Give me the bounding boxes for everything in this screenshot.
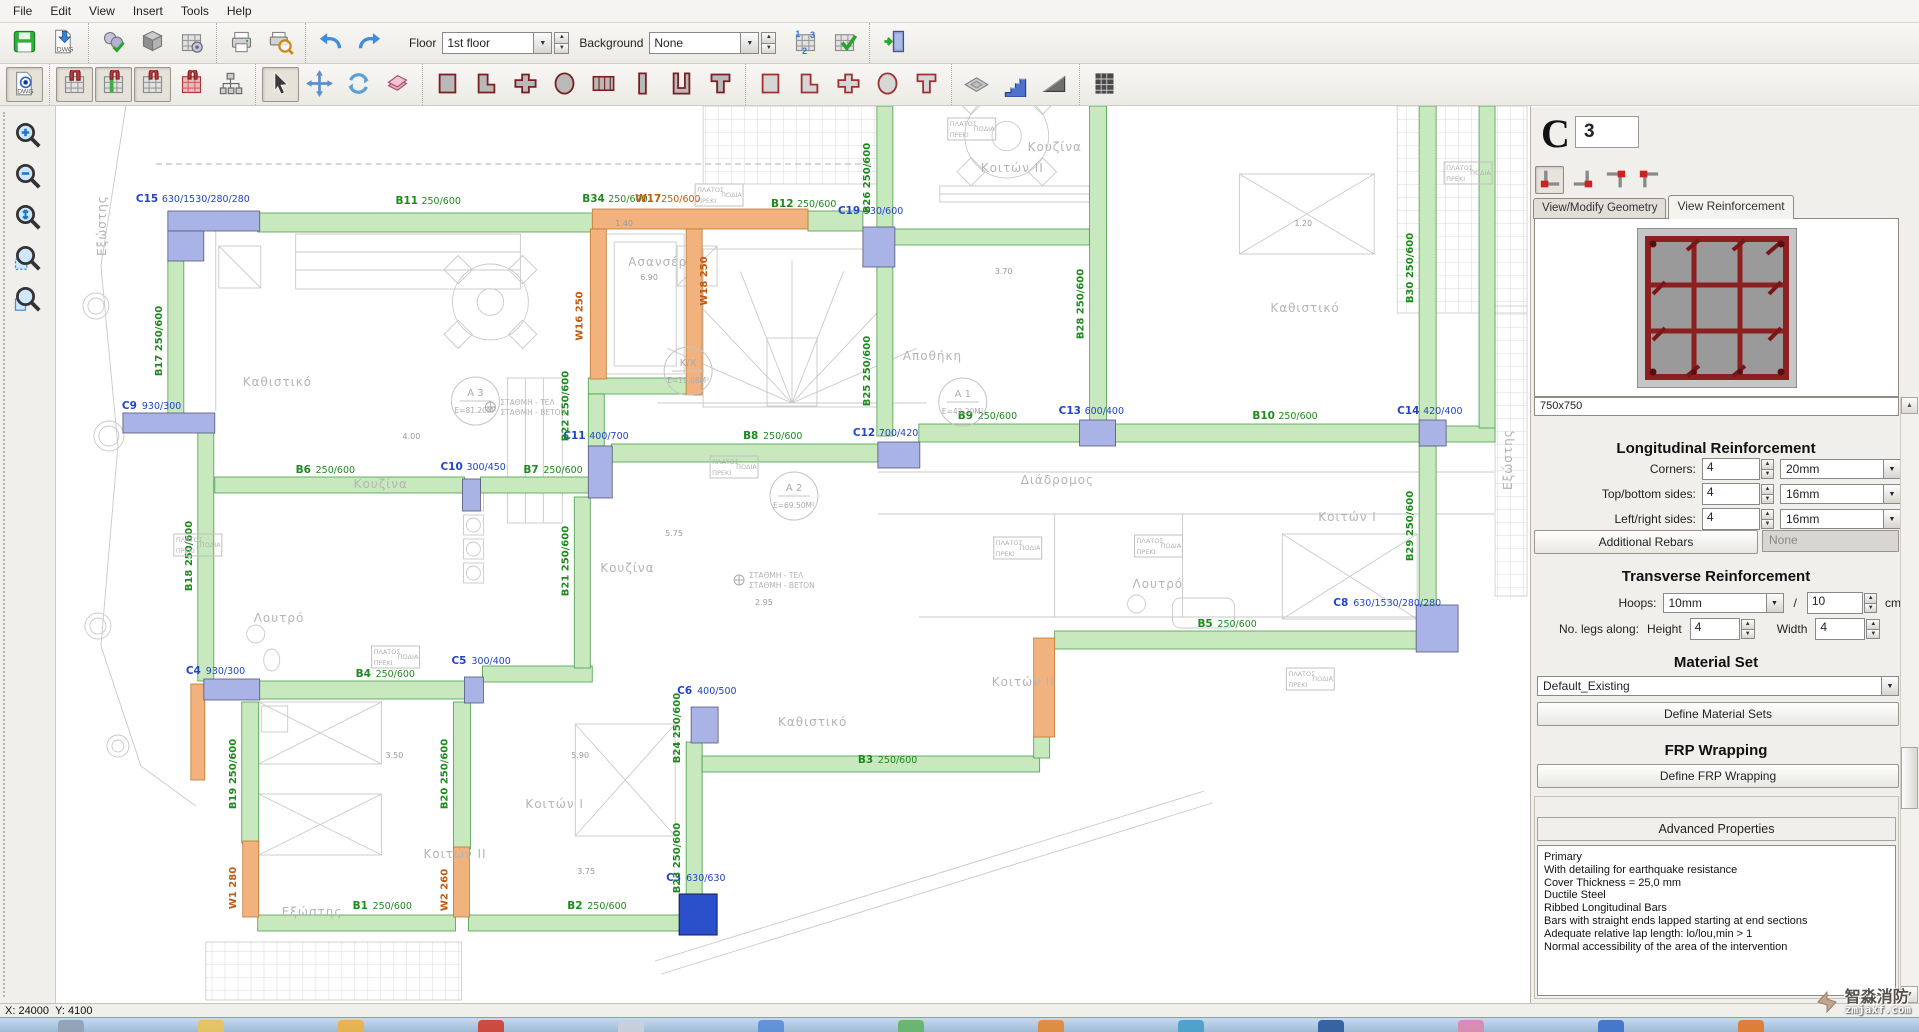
- section-u-button[interactable]: [663, 67, 700, 102]
- svg-text:250/600: 250/600: [878, 755, 917, 766]
- svg-text:ΠΛΑΤΟΣ: ΠΛΑΤΟΣ: [697, 186, 724, 194]
- svg-text:Κοιτών II: Κοιτών II: [992, 675, 1055, 689]
- cube-icon: [139, 28, 166, 58]
- rebar-diameter-select[interactable]: 16mm▼: [1780, 509, 1901, 529]
- check-model-button[interactable]: [826, 26, 863, 61]
- ramp-icon: [1041, 70, 1068, 100]
- svg-text:1.40: 1.40: [615, 219, 633, 228]
- svg-text:B29 250/600: B29 250/600: [1405, 491, 1416, 561]
- svg-text:C15: C15: [136, 193, 158, 205]
- svg-text:2.95: 2.95: [755, 598, 773, 607]
- svg-text:ΠΡΕΚΙ: ΠΡΕΚΙ: [1446, 175, 1465, 183]
- taskbar-app-icon[interactable]: [1178, 1020, 1204, 1032]
- rebar-diameter-select[interactable]: 16mm▼: [1780, 484, 1901, 504]
- svg-text:B25 250/600: B25 250/600: [862, 336, 873, 406]
- panel-scrollbar[interactable]: ▲ ▼: [1900, 397, 1919, 1003]
- svg-text:A 3: A 3: [467, 388, 483, 399]
- member-l-icon: [796, 70, 823, 100]
- section-rect-icon: [434, 70, 461, 100]
- hoops-spacing-field[interactable]: 10: [1807, 592, 1864, 614]
- svg-text:3.75: 3.75: [577, 867, 595, 876]
- svg-text:Κουζίνα: Κουζίνα: [1028, 140, 1082, 154]
- svg-text:Κουζίνα: Κουζίνα: [354, 477, 408, 491]
- svg-text:B17 250/600: B17 250/600: [154, 306, 165, 376]
- svg-text:C10: C10: [440, 461, 462, 473]
- column-pos-tr-button[interactable]: [1601, 166, 1630, 194]
- svg-text:300/400: 300/400: [471, 656, 510, 667]
- status-bar: X: 24000 Y: 4100: [0, 1003, 1919, 1017]
- taskbar-app-icon[interactable]: [898, 1020, 924, 1032]
- define-material-sets-button[interactable]: Define Material Sets: [1537, 702, 1899, 726]
- svg-text:B3: B3: [858, 754, 873, 766]
- longitudinal-row: Left/right sides:4▲▼16mm▼: [1531, 508, 1901, 530]
- svg-text:630/630: 630/630: [686, 873, 725, 884]
- frp-title: FRP Wrapping: [1531, 742, 1901, 759]
- chevron-down-icon: ▼: [1884, 459, 1901, 479]
- legs-width-field[interactable]: 4: [1815, 618, 1865, 640]
- chevron-down-icon[interactable]: ▼: [741, 32, 759, 54]
- member-tee-icon: [913, 70, 940, 100]
- cursor-y: Y: 4100: [55, 1005, 92, 1017]
- svg-text:ΠΛΑΤΟΣ: ΠΛΑΤΟΣ: [712, 458, 739, 466]
- longitudinal-row: Top/bottom sides:4▲▼16mm▼: [1531, 483, 1901, 505]
- delete-button[interactable]: [379, 67, 416, 102]
- svg-text:4.00: 4.00: [403, 432, 421, 441]
- svg-text:630/1530/280/280: 630/1530/280/280: [162, 194, 250, 205]
- taskbar-app-icon[interactable]: [1458, 1020, 1484, 1032]
- svg-text:C14: C14: [1397, 405, 1419, 417]
- rebar-diameter-select[interactable]: 20mm▼: [1780, 459, 1901, 479]
- member-rect-icon: [757, 70, 784, 100]
- material-title: Material Set: [1531, 654, 1901, 671]
- svg-text:C13: C13: [1059, 405, 1081, 417]
- element-number-field[interactable]: 3: [1575, 116, 1639, 148]
- svg-text:ΠΛΑΤΟΣ: ΠΛΑΤΟΣ: [1137, 537, 1164, 545]
- advanced-properties-group: Advanced Properties PrimaryWith detailin…: [1534, 796, 1899, 999]
- svg-text:A 1: A 1: [955, 389, 971, 400]
- print-preview-button[interactable]: [262, 26, 299, 61]
- section-size-field[interactable]: 750x750: [1534, 397, 1899, 416]
- dwg-view-button[interactable]: DWG: [6, 67, 43, 102]
- svg-text:B23 250/600: B23 250/600: [672, 823, 683, 893]
- svg-text:E=42.20M²: E=42.20M²: [942, 407, 984, 416]
- drawing-toolbar: DWG: [0, 64, 1919, 106]
- svg-text:W18 250: W18 250: [699, 256, 710, 305]
- svg-text:6.90: 6.90: [640, 273, 658, 282]
- render3d-icon: [1091, 70, 1118, 100]
- print-preview-icon: [267, 28, 294, 58]
- svg-text:ΠΟΔΙΑ: ΠΟΔΙΑ: [200, 541, 221, 549]
- member-tee-button[interactable]: [908, 67, 945, 102]
- svg-text:ΠΡΕΚΙ: ΠΡΕΚΙ: [996, 550, 1015, 558]
- svg-text:ΣΤΑΘΜΗ - ΒΕΤΟΝ: ΣΤΑΘΜΗ - ΒΕΤΟΝ: [749, 581, 815, 590]
- svg-text:Κοιτών I: Κοιτών I: [1318, 510, 1376, 524]
- section-wall-button[interactable]: [624, 67, 661, 102]
- chevron-down-icon: ▼: [1884, 509, 1901, 529]
- svg-text:3: 3: [810, 30, 815, 40]
- svg-text:ΠΟΔΙΑ: ΠΟΔΙΑ: [721, 191, 742, 199]
- column-position-buttons: [1535, 166, 1663, 194]
- model-tree-button[interactable]: [212, 67, 249, 102]
- zoom-window-button[interactable]: [7, 240, 49, 278]
- svg-text:B34: B34: [582, 193, 605, 205]
- svg-text:5.90: 5.90: [571, 751, 589, 760]
- section-composite-icon: [590, 70, 617, 100]
- svg-text:B24 250/600: B24 250/600: [672, 693, 683, 763]
- zoom-toolbar: [0, 106, 56, 1003]
- background-label: Background: [579, 36, 643, 50]
- move-icon: [306, 70, 333, 100]
- taskbar-app-icon[interactable]: [198, 1020, 224, 1032]
- zoom-out-button[interactable]: [7, 158, 49, 196]
- watermark: 智淼消防 zmjaxf.com: [1814, 989, 1911, 1015]
- select-button[interactable]: [262, 67, 299, 102]
- scroll-up-icon[interactable]: ▲: [1901, 397, 1918, 414]
- zoom-previous-icon: [13, 284, 43, 317]
- svg-text:250/600: 250/600: [422, 196, 461, 207]
- model-grid-button[interactable]: [134, 67, 171, 102]
- rebar-count-stepper[interactable]: ▲▼: [1761, 509, 1774, 529]
- rebar-count-stepper[interactable]: ▲▼: [1761, 484, 1774, 504]
- svg-text:930/300: 930/300: [206, 666, 245, 677]
- column-pos-br-button[interactable]: [1568, 166, 1597, 194]
- background-stepper[interactable]: ▲▼: [761, 32, 776, 54]
- svg-text:B28 250/600: B28 250/600: [1076, 269, 1087, 339]
- svg-text:700/420: 700/420: [879, 428, 918, 439]
- svg-text:ΠΟΔΙΑ: ΠΟΔΙΑ: [736, 463, 757, 471]
- zoom-extents-button[interactable]: [7, 199, 49, 237]
- taskbar-app-icon[interactable]: [1318, 1020, 1344, 1032]
- chevron-down-icon[interactable]: ▼: [534, 32, 552, 54]
- scrollbar-thumb[interactable]: [1901, 747, 1918, 809]
- svg-text:Κοιτών II: Κοιτών II: [981, 161, 1044, 175]
- section-preview-image: [1637, 228, 1797, 388]
- section-plus-icon: [512, 70, 539, 100]
- delete-icon: [384, 70, 411, 100]
- floor-plan[interactable]: C15630/1530/280/280C19530/600C9930/300C1…: [56, 106, 1530, 1003]
- model-grid-green-button[interactable]: [95, 67, 132, 102]
- svg-text:250/600: 250/600: [1217, 619, 1256, 630]
- svg-text:B4: B4: [356, 668, 371, 680]
- taskbar-app-icon[interactable]: [618, 1020, 644, 1032]
- select-icon: [267, 70, 294, 100]
- svg-text:250/600: 250/600: [797, 199, 836, 210]
- column-pos-tl-button[interactable]: [1634, 166, 1663, 194]
- properties-panel: C 3 View/Modify Geometry View Reinforcem…: [1530, 106, 1919, 1003]
- zoom-previous-button[interactable]: [7, 281, 49, 319]
- move-button[interactable]: [301, 67, 338, 102]
- grid-settings-button[interactable]: [173, 26, 210, 61]
- svg-text:250/600: 250/600: [587, 901, 626, 912]
- legs-width-stepper[interactable]: ▲▼: [1866, 619, 1880, 639]
- print-icon: [228, 28, 255, 58]
- svg-text:B5: B5: [1197, 618, 1212, 630]
- chevron-down-icon: ▼: [1884, 484, 1901, 504]
- svg-text:ΠΛΑΤΟΣ: ΠΛΑΤΟΣ: [1288, 670, 1315, 678]
- watermark-logo-icon: [1814, 990, 1840, 1014]
- svg-text:ΠΛΑΤΟΣ: ΠΛΑΤΟΣ: [996, 539, 1023, 547]
- rotate-icon: [345, 70, 372, 100]
- zoom-in-button[interactable]: [7, 117, 49, 155]
- section-wall-icon: [629, 70, 656, 100]
- svg-text:DWG: DWG: [57, 47, 74, 54]
- svg-text:600/400: 600/400: [1085, 406, 1124, 417]
- svg-text:ΠΟΔΙΑ: ΠΟΔΙΑ: [1020, 544, 1041, 552]
- svg-text:C12: C12: [853, 427, 875, 439]
- svg-text:B2: B2: [567, 900, 582, 912]
- zoom-extents-icon: [13, 202, 43, 235]
- define-frp-wrapping-button[interactable]: Define FRP Wrapping: [1537, 764, 1899, 788]
- svg-text:ΣΤΑΘΜΗ - ΤΕΛ: ΣΤΑΘΜΗ - ΤΕΛ: [749, 571, 804, 580]
- svg-text:ΠΟΔΙΑ: ΠΟΔΙΑ: [1312, 675, 1333, 683]
- model-tree-icon: [217, 70, 244, 100]
- member-plus-button[interactable]: [830, 67, 867, 102]
- floor-select[interactable]: 1st floor ▼: [442, 32, 552, 54]
- svg-text:ΠΟΔΙΑ: ΠΟΔΙΑ: [1470, 169, 1491, 177]
- undo-icon: [317, 28, 344, 58]
- dwg-import-icon: DWG: [50, 28, 77, 58]
- svg-text:250/600: 250/600: [316, 465, 355, 476]
- section-rect-button[interactable]: [429, 67, 466, 102]
- selected-column-C3[interactable]: [679, 894, 717, 935]
- menu-file[interactable]: File: [4, 1, 41, 21]
- plan-canvas[interactable]: C15630/1530/280/280C19530/600C9930/300C1…: [56, 106, 1530, 1003]
- settings-button[interactable]: [95, 26, 132, 61]
- rebar-count-stepper[interactable]: ▲▼: [1761, 459, 1774, 479]
- svg-text:Ασανσέρ: Ασανσέρ: [628, 255, 687, 269]
- taskbar-app-icon[interactable]: [1038, 1020, 1064, 1032]
- svg-text:C9: C9: [122, 400, 137, 412]
- svg-text:Κουζίνα: Κουζίνα: [600, 561, 654, 575]
- main-toolbar: DWG Floor 1st floor ▼ ▲▼ Background None…: [0, 23, 1919, 64]
- ramp-button[interactable]: [1036, 67, 1073, 102]
- hoops-diameter-select[interactable]: 10mm▼: [1663, 593, 1784, 613]
- dwg-import-button[interactable]: DWG: [45, 26, 82, 61]
- legs-height-stepper[interactable]: ▲▼: [1741, 619, 1755, 639]
- svg-text:B19 250/600: B19 250/600: [228, 739, 239, 809]
- svg-text:Καθιστικό: Καθιστικό: [243, 375, 312, 389]
- svg-text:1: 1: [796, 29, 801, 39]
- svg-text:ΠΛΑΤΟΣ: ΠΛΑΤΟΣ: [374, 648, 401, 656]
- additional-rebars-button[interactable]: Additional Rebars: [1534, 530, 1758, 554]
- exit-icon: [881, 28, 908, 58]
- menu-view[interactable]: View: [80, 1, 124, 21]
- chevron-down-icon: ▼: [1767, 593, 1784, 613]
- menu-bar: FileEditViewInsertToolsHelp: [0, 0, 1919, 23]
- svg-text:B20 250/600: B20 250/600: [439, 739, 450, 809]
- print-button[interactable]: [223, 26, 260, 61]
- svg-text:Κοιτών I: Κοιτών I: [525, 797, 583, 811]
- svg-text:ΠΡΕΚΙ: ΠΡΕΚΙ: [697, 197, 716, 205]
- floor-group: Floor 1st floor ▼ ▲▼ Background None ▼ ▲…: [394, 23, 781, 63]
- model-snap-button[interactable]: [56, 67, 93, 102]
- slab-icon: [963, 70, 990, 100]
- redo-button[interactable]: [351, 26, 388, 61]
- zoom-window-icon: [13, 243, 43, 276]
- section-circle-button[interactable]: [546, 67, 583, 102]
- section-circle-icon: [551, 70, 578, 100]
- zoom-in-icon: [13, 120, 43, 153]
- menu-tools[interactable]: Tools: [172, 1, 218, 21]
- render3d-button[interactable]: [1086, 67, 1123, 102]
- hoops-spacing-stepper[interactable]: ▲▼: [1864, 593, 1877, 613]
- svg-text:B30 250/600: B30 250/600: [1405, 233, 1416, 303]
- slab-button[interactable]: [958, 67, 995, 102]
- svg-text:3.50: 3.50: [386, 751, 404, 760]
- model-grid-icon: [139, 70, 166, 100]
- taskbar-app-icon[interactable]: [338, 1020, 364, 1032]
- dwg-view-icon: DWG: [11, 70, 38, 100]
- chevron-down-icon: ▼: [1882, 676, 1899, 696]
- renumber-grid-icon: 132: [792, 28, 819, 58]
- svg-text:Λουτρό: Λουτρό: [254, 611, 305, 625]
- settings-icon: [100, 28, 127, 58]
- svg-text:ΠΡΕΚΙ: ΠΡΕΚΙ: [950, 131, 969, 139]
- element-type-letter: C: [1541, 110, 1570, 157]
- svg-text:Αποθήκη: Αποθήκη: [903, 349, 962, 363]
- svg-text:250/600: 250/600: [1278, 411, 1317, 422]
- rotate-button[interactable]: [340, 67, 377, 102]
- column-pos-tr-icon: [1605, 169, 1627, 192]
- menu-help[interactable]: Help: [218, 1, 261, 21]
- rebar-count-field[interactable]: 4: [1702, 458, 1760, 480]
- svg-text:C8: C8: [1333, 597, 1348, 609]
- svg-text:W16 250: W16 250: [574, 291, 585, 340]
- save-button[interactable]: [6, 26, 43, 61]
- legs-row: No. legs along: Height 4 ▲▼ Width 4 ▲▼: [1531, 618, 1901, 640]
- panel-tabs: View/Modify Geometry View Reinforcement: [1533, 198, 1901, 219]
- member-l-button[interactable]: [791, 67, 828, 102]
- svg-text:3.70: 3.70: [995, 267, 1013, 276]
- tab-view-modify-geometry[interactable]: View/Modify Geometry: [1533, 198, 1666, 219]
- member-rect-button[interactable]: [752, 67, 789, 102]
- advanced-properties-header[interactable]: Advanced Properties: [1537, 817, 1896, 841]
- svg-text:Εξώστης: Εξώστης: [1501, 429, 1515, 490]
- section-tee-icon: [707, 70, 734, 100]
- additional-rebars-value: None: [1762, 530, 1899, 552]
- svg-text:E=19.08M²: E=19.08M²: [667, 376, 709, 385]
- svg-text:B10: B10: [1252, 410, 1275, 422]
- svg-text:630/1530/280/280: 630/1530/280/280: [1353, 598, 1441, 609]
- svg-text:ΠΡΕΚΙ: ΠΡΕΚΙ: [712, 469, 731, 477]
- taskbar-app-icon[interactable]: [1738, 1020, 1764, 1032]
- longitudinal-title: Longitudinal Reinforcement: [1531, 440, 1901, 457]
- svg-text:W2 260: W2 260: [439, 869, 450, 911]
- svg-text:ΠΛΑΤΟΣ: ΠΛΑΤΟΣ: [176, 536, 203, 544]
- section-plus-button[interactable]: [507, 67, 544, 102]
- svg-text:250/600: 250/600: [543, 465, 582, 476]
- column-pos-bl-icon: [1539, 169, 1561, 192]
- svg-text:400/700: 400/700: [589, 431, 628, 442]
- taskbar-app-icon[interactable]: [58, 1020, 84, 1032]
- svg-text:B6: B6: [296, 464, 311, 476]
- svg-text:A 2: A 2: [786, 483, 802, 494]
- exit-button[interactable]: [876, 26, 913, 61]
- model-snap-icon: [61, 70, 88, 100]
- member-circle-icon: [874, 70, 901, 100]
- svg-text:Κοιτών II: Κοιτών II: [424, 847, 487, 861]
- rebar-count-field[interactable]: 4: [1702, 483, 1760, 505]
- save-icon: [11, 28, 38, 58]
- svg-text:ΠΟΔΙΑ: ΠΟΔΙΑ: [974, 125, 995, 133]
- column-pos-br-icon: [1572, 169, 1594, 192]
- svg-text:ΠΡΕΚΙ: ΠΡΕΚΙ: [1137, 548, 1156, 556]
- svg-text:C19: C19: [838, 205, 860, 217]
- model-grid-green-icon: [100, 70, 127, 100]
- redo-icon: [356, 28, 383, 58]
- reinforcement-preview: [1534, 218, 1899, 397]
- svg-text:W1 280: W1 280: [228, 867, 239, 909]
- legs-height-field[interactable]: 4: [1690, 618, 1740, 640]
- member-plus-icon: [835, 70, 862, 100]
- svg-text:DWG: DWG: [17, 88, 34, 95]
- longitudinal-row: Corners:4▲▼20mm▼: [1531, 458, 1901, 480]
- section-composite-button[interactable]: [585, 67, 622, 102]
- renumber-grid-button[interactable]: 132: [787, 26, 824, 61]
- tab-view-reinforcement[interactable]: View Reinforcement: [1668, 195, 1793, 219]
- material-select[interactable]: Default_Existing▼: [1537, 676, 1899, 696]
- svg-text:ΠΟΔΙΑ: ΠΟΔΙΑ: [1161, 542, 1182, 550]
- svg-text:Λουτρό: Λουτρό: [1133, 577, 1184, 591]
- stairs-icon: [1002, 70, 1029, 100]
- svg-text:C5: C5: [451, 655, 466, 667]
- undo-button[interactable]: [312, 26, 349, 61]
- menu-insert[interactable]: Insert: [124, 1, 172, 21]
- svg-text:ΠΛΑΤΟΣ: ΠΛΑΤΟΣ: [1446, 164, 1473, 172]
- svg-text:B12: B12: [771, 198, 794, 210]
- svg-text:400/500: 400/500: [697, 686, 736, 697]
- svg-text:B8: B8: [743, 430, 758, 442]
- section-u-icon: [668, 70, 695, 100]
- grid-settings-icon: [178, 28, 205, 58]
- svg-text:Καθιστικό: Καθιστικό: [778, 715, 847, 729]
- svg-text:B26 250/600: B26 250/600: [862, 143, 873, 213]
- cube-button[interactable]: [134, 26, 171, 61]
- menu-edit[interactable]: Edit: [41, 1, 80, 21]
- svg-text:ΠΡΕΚΙ: ΠΡΕΚΙ: [176, 547, 195, 555]
- svg-text:930/300: 930/300: [142, 401, 181, 412]
- svg-text:B11: B11: [396, 195, 419, 207]
- floor-stepper[interactable]: ▲▼: [554, 32, 569, 54]
- svg-text:250/600: 250/600: [373, 901, 412, 912]
- svg-text:B1: B1: [353, 900, 368, 912]
- svg-text:W17: W17: [635, 193, 661, 205]
- svg-text:B22 250/600: B22 250/600: [560, 371, 571, 441]
- background-select[interactable]: None ▼: [649, 32, 759, 54]
- svg-text:Εξώστης: Εξώστης: [282, 905, 343, 919]
- svg-text:C4: C4: [186, 665, 201, 677]
- svg-text:Καθιστικό: Καθιστικό: [1270, 301, 1339, 315]
- taskbar-app-icon[interactable]: [1598, 1020, 1624, 1032]
- stairs-button[interactable]: [997, 67, 1034, 102]
- svg-text:B21 250/600: B21 250/600: [560, 526, 571, 596]
- taskbar-app-icon[interactable]: [758, 1020, 784, 1032]
- taskbar[interactable]: [0, 1017, 1919, 1032]
- advanced-properties-text: PrimaryWith detailing for earthquake res…: [1537, 845, 1896, 996]
- svg-text:ΣΤΑΘΜΗ - ΒΕΤΟΝ: ΣΤΑΘΜΗ - ΒΕΤΟΝ: [500, 408, 566, 417]
- svg-text:K/X: K/X: [680, 358, 697, 369]
- section-l-button[interactable]: [468, 67, 505, 102]
- taskbar-app-icon[interactable]: [478, 1020, 504, 1032]
- model-grid-red-button[interactable]: [173, 67, 210, 102]
- rebar-count-field[interactable]: 4: [1702, 508, 1760, 530]
- hoops-row: Hoops: 10mm▼ / 10 ▲▼ cm: [1531, 592, 1901, 614]
- member-circle-button[interactable]: [869, 67, 906, 102]
- cursor-x: X: 24000: [5, 1005, 49, 1017]
- section-tee-button[interactable]: [702, 67, 739, 102]
- column-pos-bl-button[interactable]: [1535, 166, 1564, 194]
- svg-text:ΠΡΕΚΙ: ΠΡΕΚΙ: [1288, 681, 1307, 689]
